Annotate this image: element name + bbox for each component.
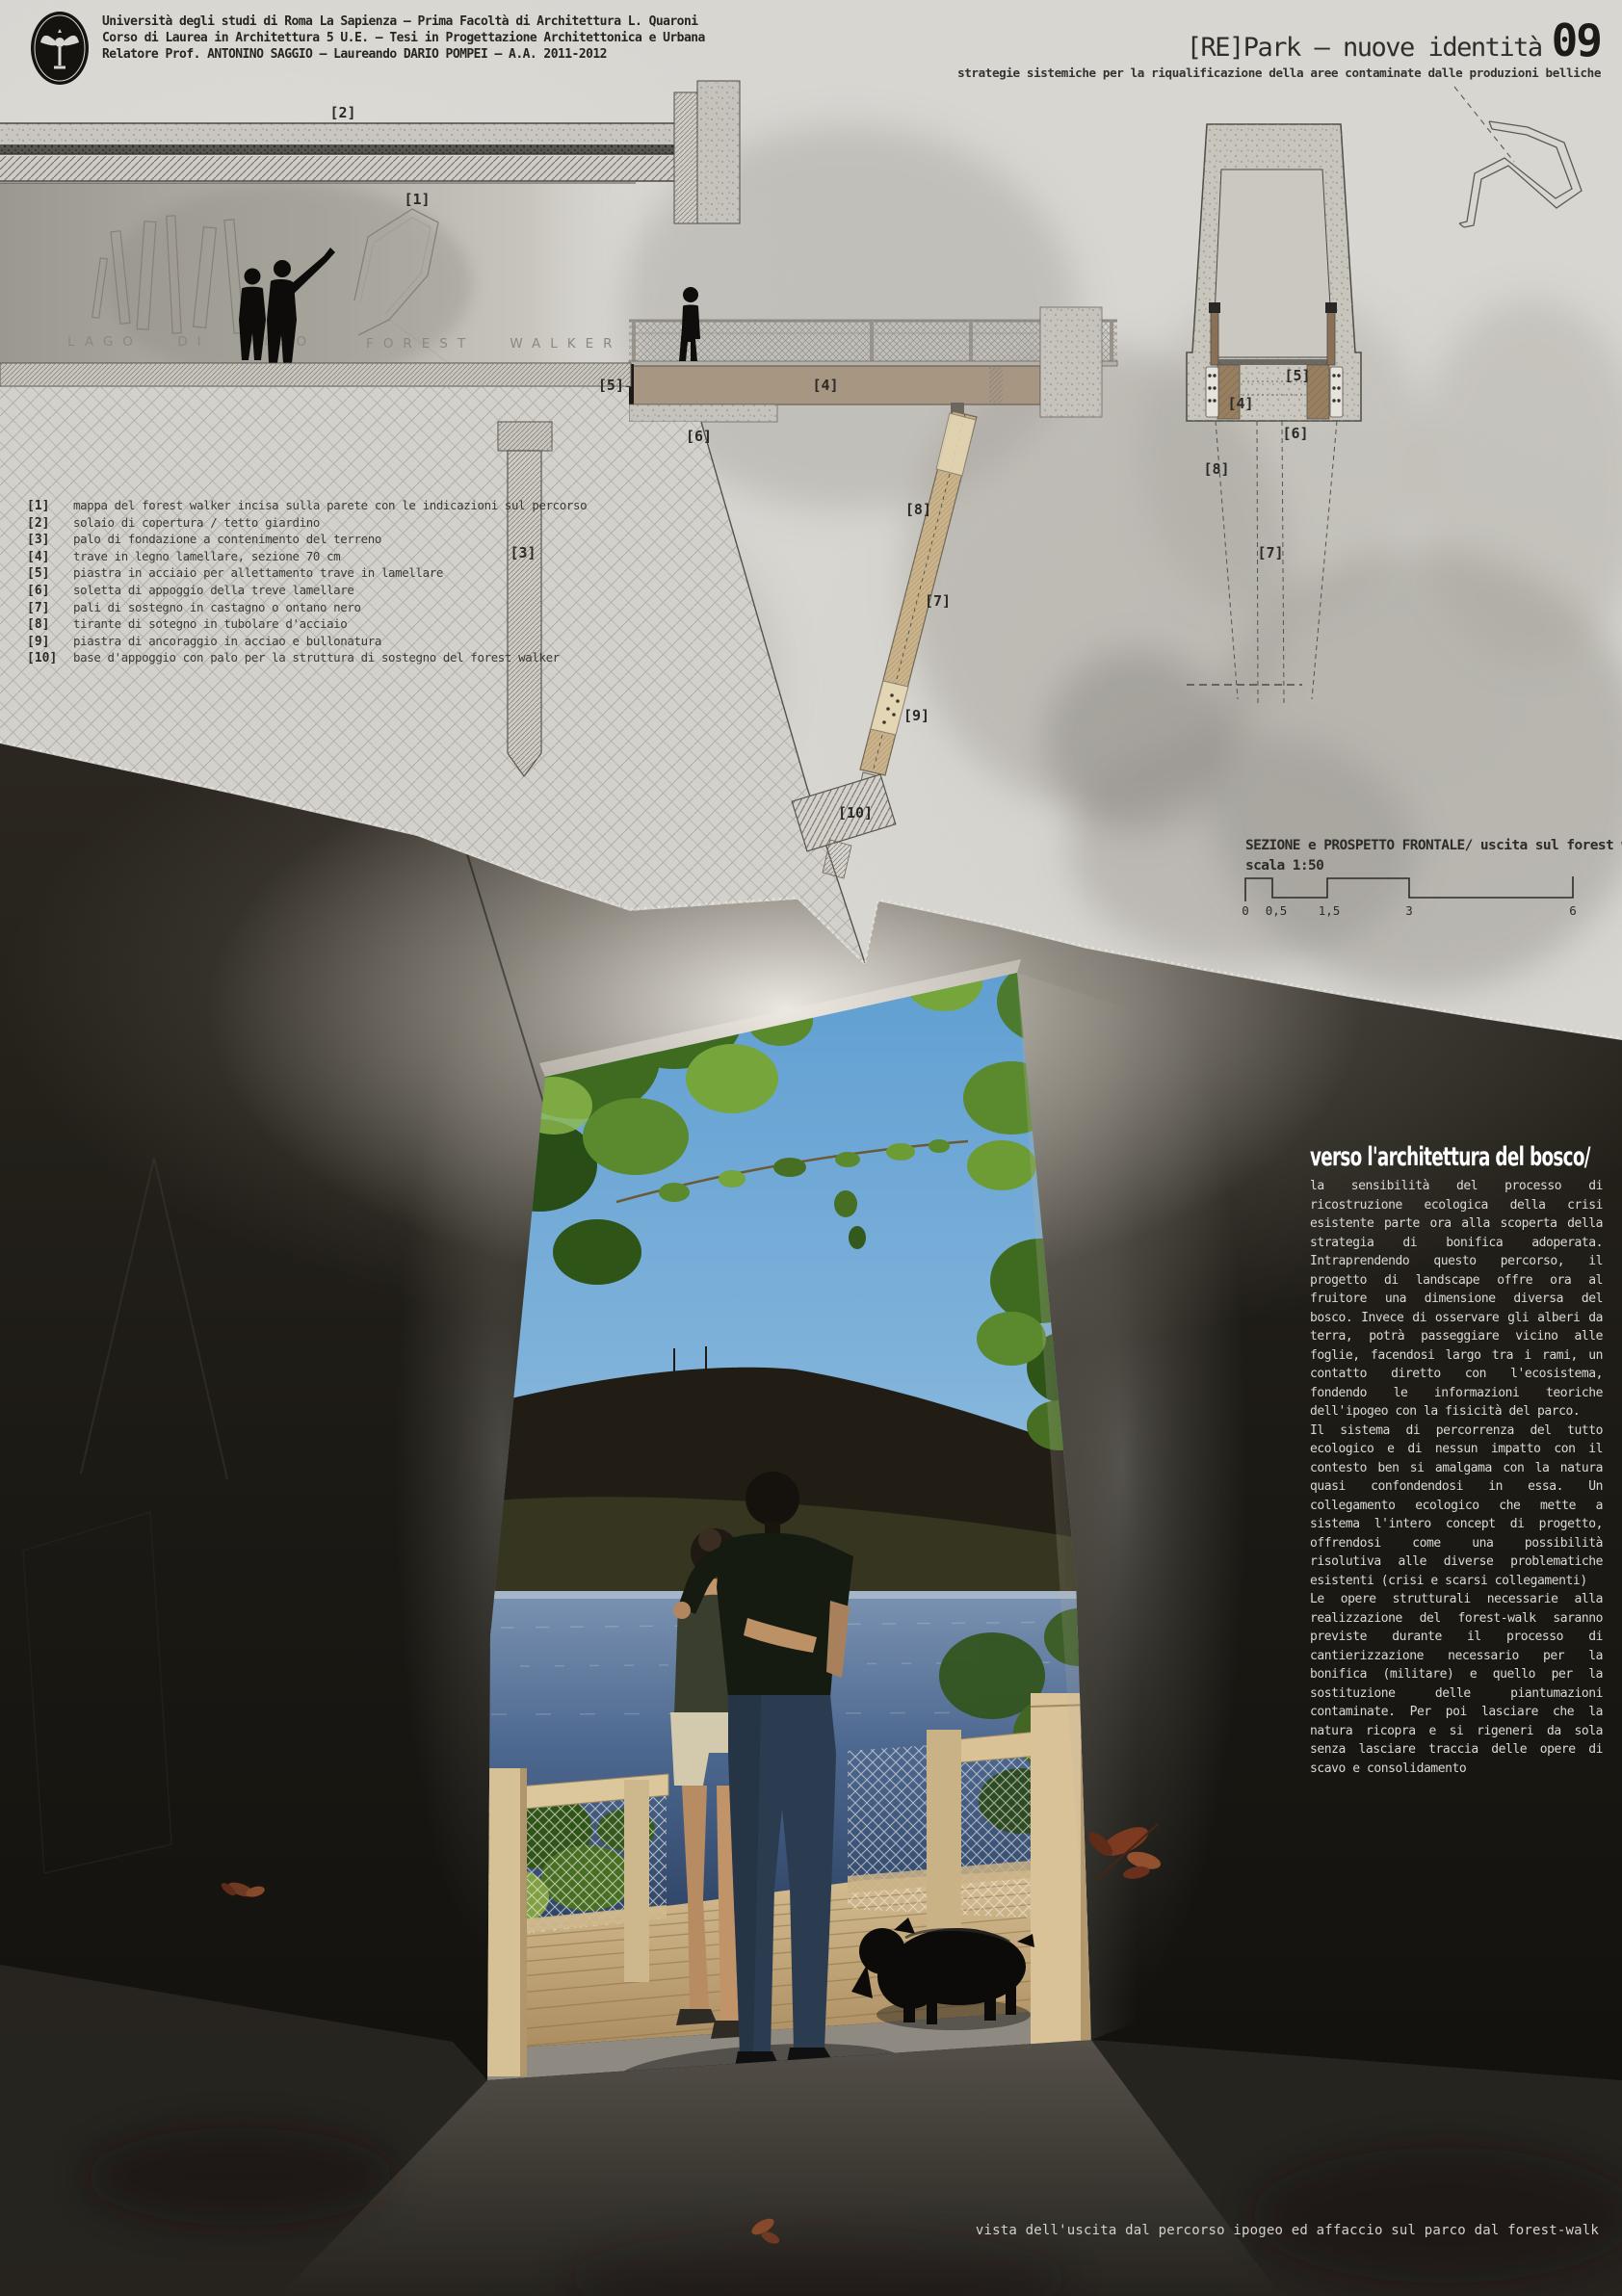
poster-board: { "header": { "line1": "Università degli…: [0, 0, 1622, 2296]
callout-2: [2]: [329, 104, 355, 121]
callout-4: [4]: [812, 377, 838, 394]
legend-item: [4]trave in legno lamellare, sezione 70 …: [27, 549, 587, 566]
site-label-forest: FOREST WALKER: [366, 336, 622, 352]
legend-num: [2]: [27, 516, 73, 531]
legend-text: palo di fondazione a contenimento del te…: [73, 532, 381, 546]
legend-num: [9]: [27, 635, 73, 649]
header-line-1: Università degli studi di Roma La Sapien…: [102, 13, 705, 30]
essay-paragraph-1: la sensibilità del processo di ricostruz…: [1310, 1177, 1603, 1422]
legend-num: [4]: [27, 550, 73, 564]
callout-10: [10]: [838, 804, 873, 822]
project-title: [RE]Park – nuove identità: [1187, 33, 1542, 63]
legend-text: soletta di appoggio della treve lamellar…: [73, 583, 354, 597]
sapienza-logo: [29, 10, 91, 87]
legend-list: [1]mappa del forest walker incisa sulla …: [27, 498, 587, 667]
legend-item: [10]base d'appoggio con palo per la stru…: [27, 650, 587, 667]
legend-text: solaio di copertura / tetto giardino: [73, 515, 320, 530]
legend-num: [7]: [27, 601, 73, 615]
legend-item: [8]tirante di sotegno in tubolare d'acci…: [27, 616, 587, 634]
legend-num: [6]: [27, 584, 73, 598]
portal-callout-6: [6]: [1282, 425, 1308, 442]
callout-9: [9]: [903, 707, 929, 724]
legend-text: mappa del forest walker incisa sulla par…: [73, 498, 587, 512]
sheet-number: 09: [1552, 21, 1601, 61]
legend-item: [9]piastra di ancoraggio in acciao e bul…: [27, 634, 587, 651]
legend-num: [10]: [27, 651, 73, 665]
legend-item: [2]solaio di copertura / tetto giardino: [27, 515, 587, 533]
legend-text: pali di sostegno in castagno o ontano ne…: [73, 600, 361, 614]
header-line-3: Relatore Prof. ANTONINO SAGGIO – Laurean…: [102, 46, 705, 63]
footer-caption: vista dell'uscita dal percorso ipogeo ed…: [976, 2223, 1599, 2238]
legend-num: [3]: [27, 533, 73, 547]
legend-item: [1]mappa del forest walker incisa sulla …: [27, 498, 587, 515]
legend-num: [1]: [27, 499, 73, 513]
essay-heading: verso l'architettura del bosco/: [1310, 1142, 1603, 1173]
scale-tick-15: 1,5: [1319, 903, 1341, 918]
portal-callout-7: [7]: [1257, 544, 1283, 561]
legend-item: [3]palo di fondazione a contenimento del…: [27, 532, 587, 549]
legend-num: [5]: [27, 566, 73, 581]
callout-8: [8]: [905, 501, 931, 518]
callout-7: [7]: [925, 592, 951, 610]
scale-tick-6: 6: [1569, 903, 1577, 918]
header-university-info: Università degli studi di Roma La Sapien…: [102, 13, 705, 63]
legend-item: [6]soletta di appoggio della treve lamel…: [27, 583, 587, 600]
opening-photo: [472, 953, 1113, 2105]
caption-line2: scala 1:50: [1245, 858, 1323, 874]
portal-callout-4: [4]: [1227, 395, 1253, 412]
legend-text: trave in legno lamellare, sezione 70 cm: [73, 549, 340, 563]
path-ribbon-sketch: [1454, 87, 1582, 227]
header-line-2: Corso di Laurea in Architettura 5 U.E. –…: [102, 30, 705, 46]
portal-callout-5: [5]: [1284, 367, 1310, 384]
essay-paragraph-3: Le opere strutturali necessarie alla rea…: [1310, 1590, 1603, 1778]
scale-tick-3: 3: [1405, 903, 1413, 918]
callout-6: [6]: [686, 428, 712, 445]
callout-5: [5]: [598, 377, 624, 394]
scale-tick-0: 0: [1242, 903, 1249, 918]
legend-item: [7]pali di sostegno in castagno o ontano…: [27, 600, 587, 617]
legend-text: piastra in acciaio per allettamento trav…: [73, 565, 443, 580]
callout-1: [1]: [404, 191, 430, 208]
legend-text: tirante di sotegno in tubolare d'acciaio: [73, 616, 347, 631]
scale-tick-05: 0,5: [1266, 903, 1288, 918]
portal-callout-8: [8]: [1203, 460, 1229, 478]
essay-block: verso l'architettura del bosco/ la sensi…: [1310, 1142, 1603, 1778]
legend-text: base d'appoggio con palo per la struttur…: [73, 650, 560, 665]
project-subtitle: strategie sistemiche per la riqualificaz…: [957, 65, 1601, 80]
legend-text: piastra di ancoraggio in acciao e bullon…: [73, 634, 381, 648]
essay-paragraph-2: Il sistema di percorrenza del tutto ecol…: [1310, 1422, 1603, 1591]
caption-line1: SEZIONE e PROSPETTO FRONTALE/ uscita sul…: [1245, 838, 1622, 853]
project-title-block: [RE]Park – nuove identità 09 strategie s…: [957, 21, 1601, 80]
legend-item: [5]piastra in acciaio per allettamento t…: [27, 565, 587, 583]
legend-num: [8]: [27, 617, 73, 632]
